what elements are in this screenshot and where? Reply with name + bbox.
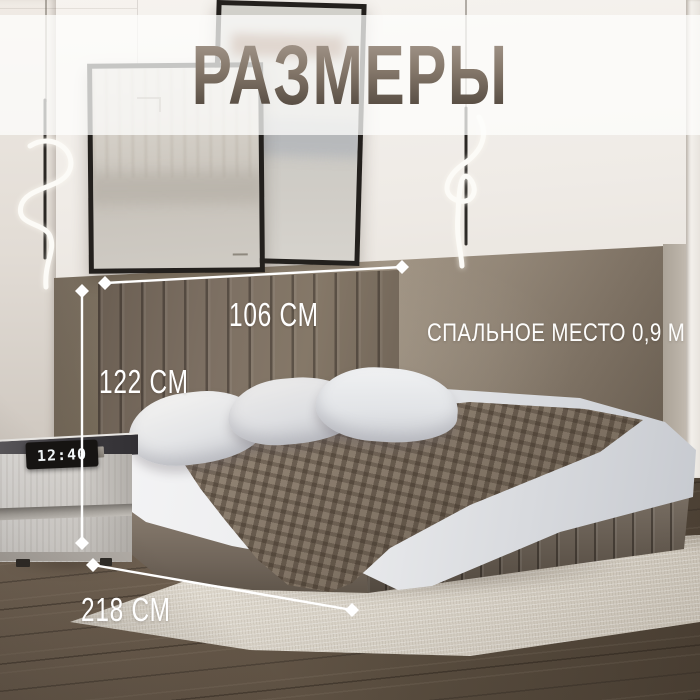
digital-alarm-clock: 12:40: [25, 439, 98, 469]
artist-signature: [233, 253, 248, 255]
bedroom-dimensions-infographic: 12:40 РАЗМЕРЫ 106 СМ 122 СМ 218 СМ СПАЛЬ…: [0, 0, 700, 700]
length-dimension-label: 218 СМ: [81, 593, 171, 626]
title-banner: РАЗМЕРЫ: [0, 15, 700, 135]
clock-time: 12:40: [37, 444, 88, 464]
nightstand-foot: [100, 558, 112, 566]
width-dimension-label: 106 СМ: [229, 298, 319, 331]
height-dimension-label: 122 СМ: [99, 365, 189, 398]
artwork-horizon-band: [87, 171, 265, 205]
sleeping-area-label: СПАЛЬНОЕ МЕСТО 0,9 М: [427, 321, 685, 346]
page-title: РАЗМЕРЫ: [192, 33, 509, 117]
nightstand-foot: [16, 559, 30, 567]
wall-seam-horizontal: [0, 8, 137, 9]
